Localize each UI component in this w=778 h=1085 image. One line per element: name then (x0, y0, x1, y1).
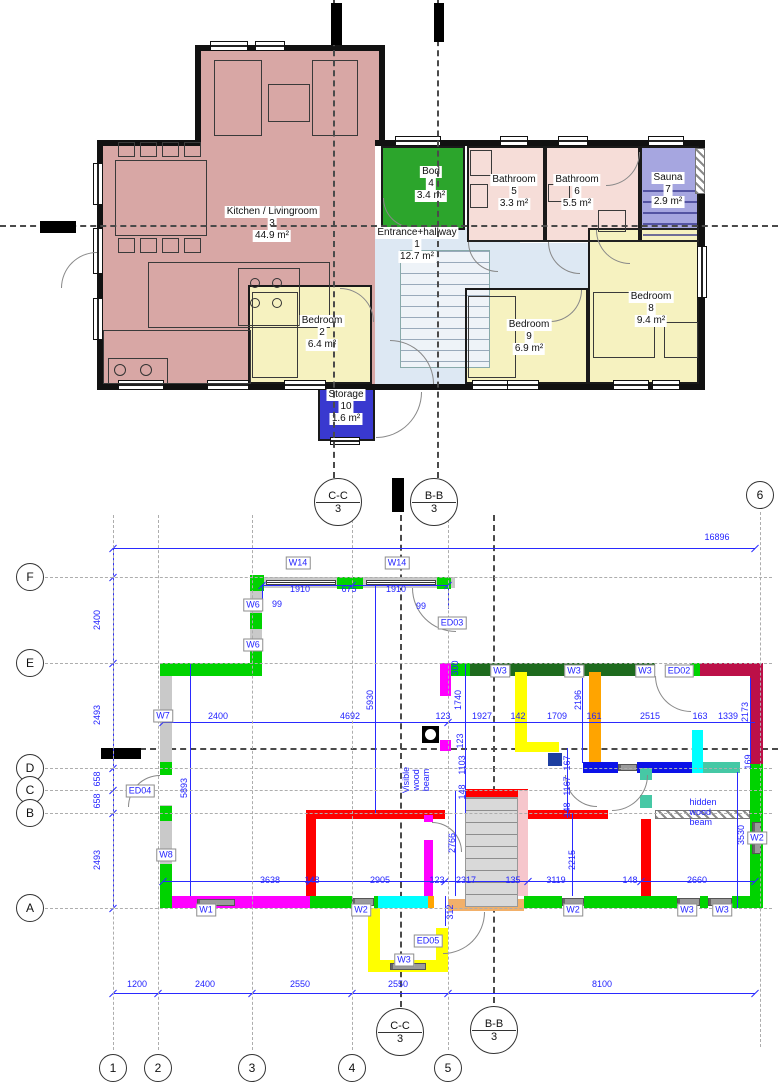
floorplan-drawing: Kitchen / Livingroom344.9 m²Entrance+hal… (0, 0, 778, 1085)
dimension-label: 148 (457, 784, 467, 799)
dimension-label: 2660 (687, 875, 707, 885)
dimension-label: 148 (562, 802, 572, 817)
wall-green (524, 896, 562, 908)
dimension-label: 3119 (546, 875, 565, 885)
grid-bubble-row: A (16, 894, 44, 922)
column-symbol-circle (425, 729, 436, 740)
dimension-label: 2766 (447, 833, 457, 853)
section-marker: C-C3 (314, 478, 362, 526)
section-marker: B-B3 (410, 478, 458, 526)
grid-bubble-column: 6 (746, 481, 774, 509)
door-tag-ed05: ED05 (414, 935, 443, 948)
dimension-label: 658 (92, 793, 102, 808)
wall-tag-w2: W2 (747, 832, 767, 845)
grid-bubble-column: 1 (99, 1054, 127, 1082)
grid-bubble-column: 2 (144, 1054, 172, 1082)
dimension-label: 148 (622, 875, 637, 885)
wall-green (160, 864, 172, 908)
dimension-label: 123 (435, 711, 450, 721)
dim-line (113, 548, 755, 549)
dimension-label: 1910 (386, 584, 406, 594)
wall-tag-w2: W2 (563, 904, 583, 917)
wall-magenta (172, 896, 310, 908)
wall-yellow (515, 742, 559, 752)
grid-line-horizontal (45, 577, 772, 578)
section-cut-mark (331, 3, 342, 45)
door-post (640, 795, 652, 808)
dimension-label: 5893 (179, 778, 189, 798)
grid-bubble-row: E (16, 649, 44, 677)
wall-tag-w14: W14 (286, 557, 311, 570)
wall-tag-w6: W6 (243, 599, 263, 612)
wall-cyan (378, 896, 428, 908)
wall-green (584, 896, 677, 908)
dimension-label: 5930 (365, 690, 375, 710)
wall-cyan (692, 730, 703, 773)
dimension-label: 2400 (208, 711, 228, 721)
dimension-label: 675 (341, 584, 356, 594)
wall-red (641, 819, 651, 896)
grid-line-horizontal (45, 908, 772, 909)
wall-green (160, 663, 262, 676)
wall-tag-w3: W3 (564, 665, 584, 678)
section-line-bb (493, 515, 495, 1003)
dimension-label: 135 (505, 875, 520, 885)
dim-line (113, 993, 755, 994)
wall-yellow (515, 672, 527, 742)
section-marker: C-C3 (376, 1008, 424, 1056)
section-line-bb (437, 0, 439, 478)
door-tag-ed03: ED03 (438, 617, 467, 630)
dimension-label: 3530 (736, 825, 746, 845)
dimension-label: 2905 (370, 875, 390, 885)
dim-line (190, 663, 191, 896)
dim-line (375, 585, 376, 813)
dimension-label: 1103 (457, 755, 467, 774)
wood-beam-note: Visiblewoodbeam (401, 767, 431, 793)
dimension-label: 1740 (453, 690, 463, 710)
dimension-label: 2550 (290, 979, 310, 989)
dimension-label: 99 (416, 601, 426, 611)
dimension-label: 167 (562, 755, 572, 770)
grid-line-vertical (252, 515, 253, 1050)
grid-line-vertical (113, 515, 114, 1050)
grid-bubble-column: 4 (338, 1054, 366, 1082)
ed02-door-arc (655, 676, 691, 712)
dimension-label: 2400 (92, 610, 102, 630)
section-cut-mark (434, 3, 444, 42)
wall-tag-w3: W3 (677, 904, 697, 917)
dimension-label: 2493 (92, 850, 102, 870)
dimension-label: 2173 (740, 702, 750, 722)
wall-magenta (440, 740, 451, 751)
dimension-label: 300 (450, 660, 460, 675)
section-line-horizontal (0, 225, 778, 227)
grid-line-horizontal (45, 663, 772, 664)
dimension-label: 658 (92, 771, 102, 786)
grid-line-vertical (760, 512, 761, 1047)
section-marker: B-B3 (470, 1006, 518, 1054)
wall-tag-w3: W3 (635, 665, 655, 678)
wall-tag-w3: W3 (712, 904, 732, 917)
wall-tag-w7: W7 (153, 710, 173, 723)
dimension-label: 3638 (260, 875, 280, 885)
dimension-label: 312 (445, 904, 455, 919)
dimension-label: 2550 (388, 979, 408, 989)
dim-line (750, 678, 751, 763)
grid-line-vertical (352, 515, 353, 1050)
dimension-label: 148 (304, 875, 319, 885)
grid-bubble-row: B (16, 799, 44, 827)
wood-beam-note: hiddenwoodbeam (689, 797, 716, 827)
dimension-label: 4692 (340, 711, 360, 721)
door-tag-ed02: ED02 (665, 665, 694, 678)
wall-green (700, 896, 708, 908)
wall-crimson (750, 663, 763, 764)
wall-tag-w6: W6 (243, 639, 263, 652)
wall-tag-w3: W3 (490, 665, 510, 678)
wall-navy (548, 753, 562, 766)
dimension-label: 1910 (290, 584, 310, 594)
dimension-label: 2515 (640, 711, 660, 721)
dimension-label: 2317 (456, 875, 476, 885)
grid-bubble-column: 3 (238, 1054, 266, 1082)
dimension-label: 161 (586, 711, 601, 721)
wall-green (310, 896, 352, 908)
dimension-label: 1200 (127, 979, 147, 989)
dimension-label: 2400 (195, 979, 215, 989)
wall-tag-w1: W1 (196, 904, 216, 917)
dimension-label: 2196 (573, 690, 583, 710)
grid-line-vertical (158, 515, 159, 1050)
section-line-cc (333, 0, 335, 478)
grid-bubble-row: F (16, 563, 44, 591)
dimension-label: 1167 (562, 776, 572, 795)
dimension-label: 8100 (592, 979, 612, 989)
dimension-label: 16896 (704, 532, 729, 542)
dimension-label: 2215 (567, 850, 577, 870)
section-cut-mark (101, 748, 141, 759)
dimension-label: 163 (692, 711, 707, 721)
dimension-label: 2493 (92, 705, 102, 725)
dimension-label: 99 (272, 599, 282, 609)
dimension-label: 1339 (718, 711, 738, 721)
grid-line-horizontal (45, 813, 772, 814)
grid-bubble-column: 5 (434, 1054, 462, 1082)
wall-tag-w8: W8 (156, 849, 176, 862)
lower-construction-plan: 123456FEDCBAC-C3B-B3C-C3B-B3168961910675… (0, 0, 778, 1085)
dimension-label: 1709 (547, 711, 567, 721)
dimension-label: 123 (429, 875, 444, 885)
wall-tag-w2: W2 (351, 904, 371, 917)
dimension-label: 123 (455, 733, 465, 748)
section-cut-mark (392, 478, 404, 512)
dimension-label: 169 (743, 754, 753, 769)
dimension-label: 142 (510, 711, 525, 721)
wall-tag-w3: W3 (394, 954, 414, 967)
wall-crimson (700, 663, 750, 676)
wall-tag-w14: W14 (385, 557, 410, 570)
section-cut-mark (40, 221, 76, 233)
door-tag-ed04: ED04 (126, 785, 155, 798)
wall-orange (428, 896, 434, 908)
grid-line-vertical (448, 515, 449, 1050)
dimension-label: 1927 (472, 711, 492, 721)
